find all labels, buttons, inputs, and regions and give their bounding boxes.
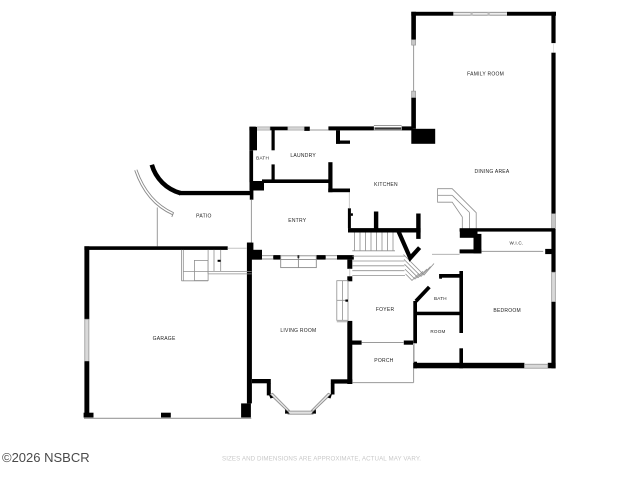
svg-text:KITCHEN: KITCHEN bbox=[374, 182, 398, 188]
svg-text:SIZES AND DIMENSIONS ARE APPRO: SIZES AND DIMENSIONS ARE APPROXIMATE, AC… bbox=[222, 456, 421, 463]
svg-text:DINING AREA: DINING AREA bbox=[475, 169, 510, 175]
svg-text:GARAGE: GARAGE bbox=[153, 336, 176, 342]
svg-text:BEDROOM: BEDROOM bbox=[493, 308, 521, 314]
svg-text:LIVING ROOM: LIVING ROOM bbox=[280, 328, 316, 334]
svg-text:PORCH: PORCH bbox=[374, 358, 393, 364]
svg-text:ENTRY: ENTRY bbox=[288, 218, 307, 224]
svg-text:FOYER: FOYER bbox=[376, 307, 395, 313]
svg-text:FAMILY ROOM: FAMILY ROOM bbox=[467, 72, 504, 78]
svg-text:LAUNDRY: LAUNDRY bbox=[290, 153, 316, 159]
svg-text:BATH: BATH bbox=[256, 156, 269, 161]
svg-text:PATIO: PATIO bbox=[196, 214, 212, 220]
svg-text:BATH: BATH bbox=[434, 296, 447, 301]
svg-text:ROOM: ROOM bbox=[430, 329, 445, 334]
svg-text:W.I.C.: W.I.C. bbox=[509, 241, 523, 246]
svg-text:©2026 NSBCR: ©2026 NSBCR bbox=[2, 450, 90, 465]
